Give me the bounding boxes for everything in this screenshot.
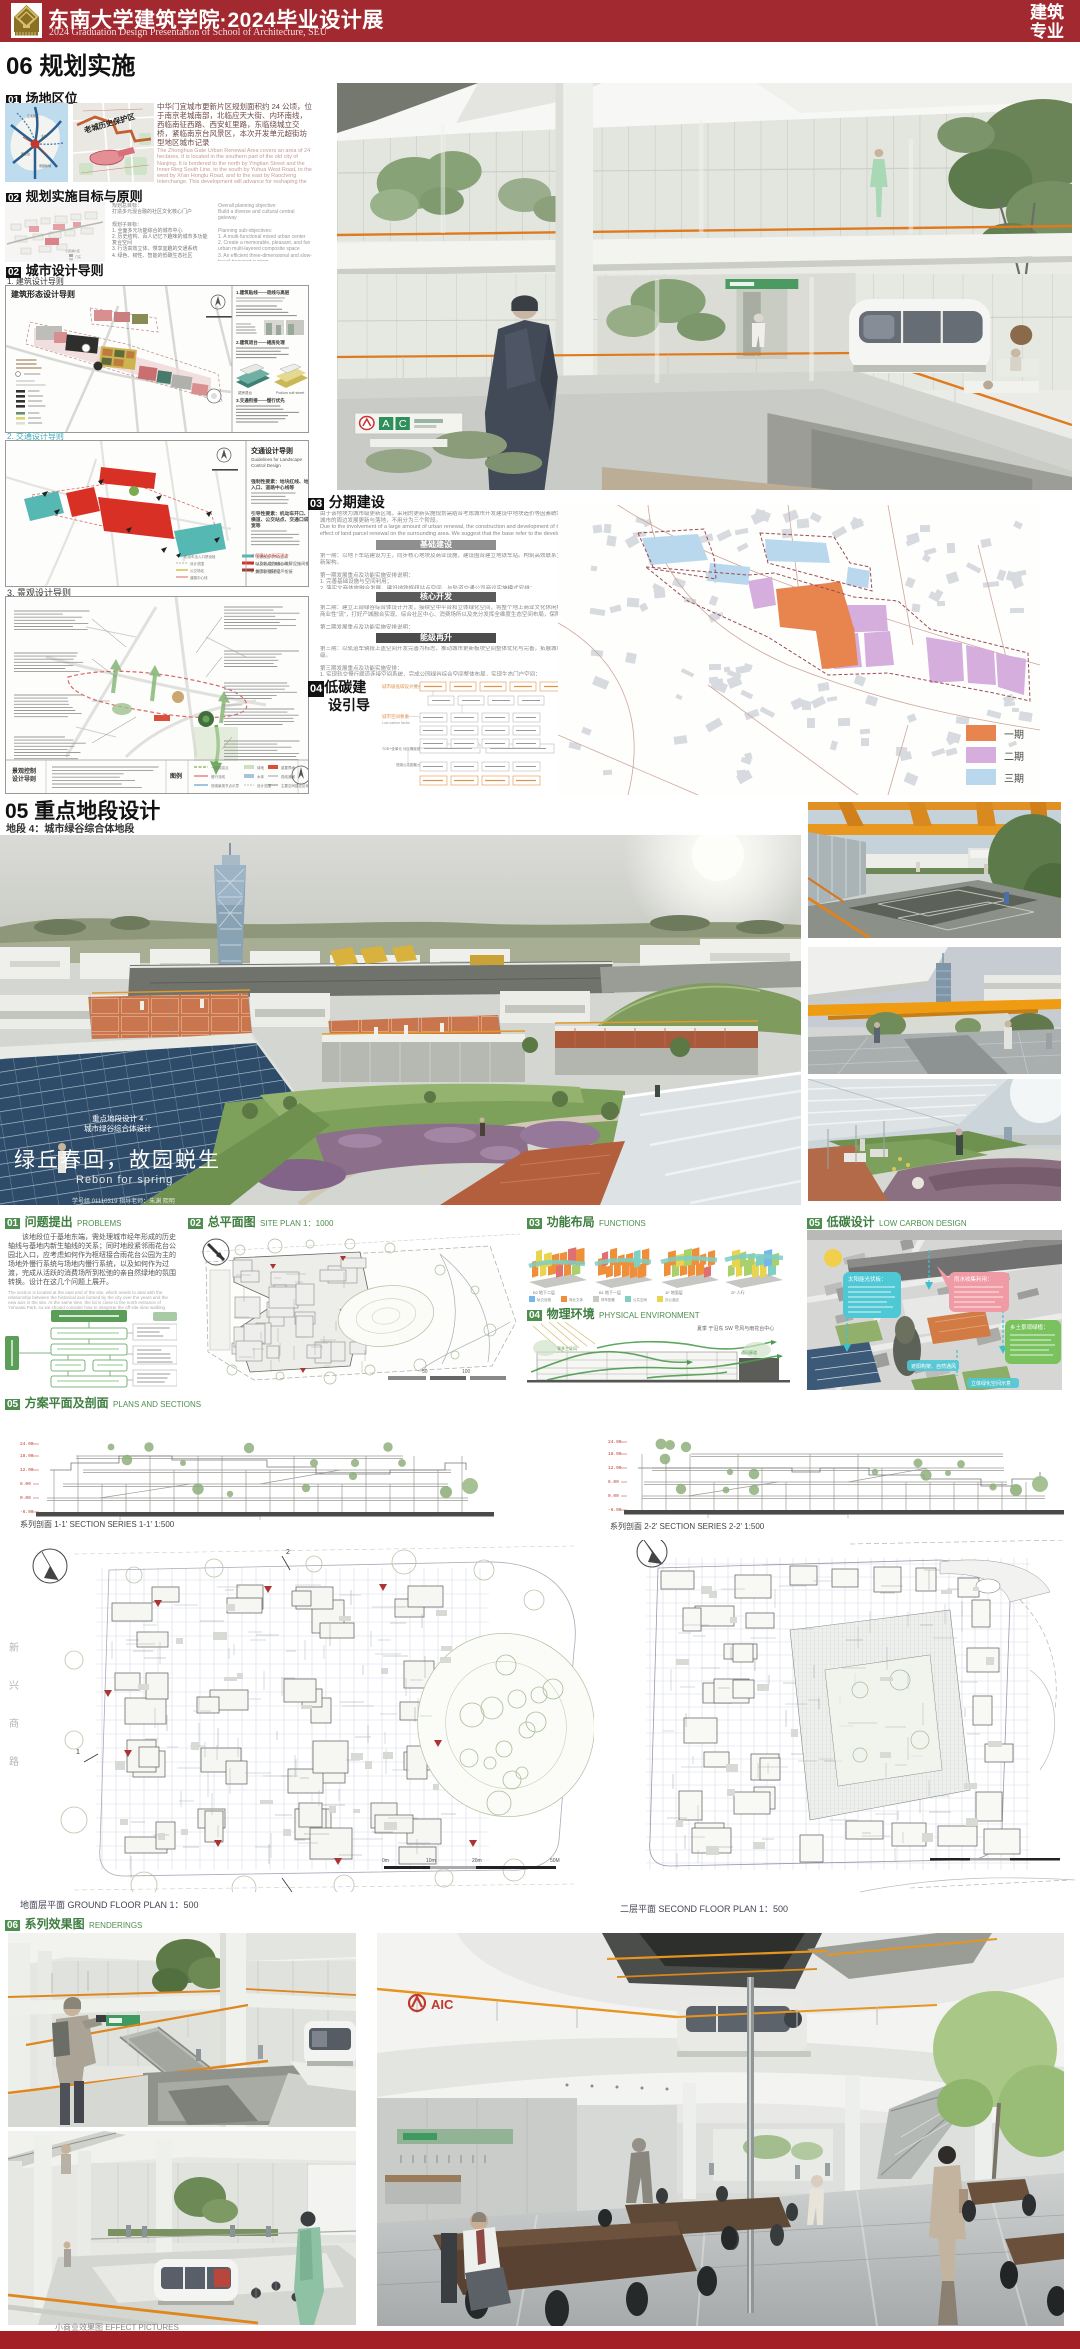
svg-text:立体绿化空间示意: 立体绿化空间示意 (971, 1380, 1011, 1387)
svg-text:✓ 保障站点街区活力: ✓ 保障站点街区活力 (251, 552, 289, 559)
svg-text:一期: 一期 (1004, 729, 1024, 741)
svg-text:绿地: 绿地 (257, 765, 265, 770)
svg-text:50: 50 (422, 1369, 428, 1375)
svg-text:城市绿谷综合体设计: 城市绿谷综合体设计 (84, 1123, 152, 1133)
svg-text:夏季 于沿东 SW 号风与雨花台中心: 夏季 于沿东 SW 号风与雨花台中心 (697, 1325, 774, 1332)
svg-text:1F 地面层: 1F 地面层 (665, 1289, 683, 1295)
svg-text:停车配套: 停车配套 (601, 1297, 615, 1302)
svg-text:1.建筑贴线——退线与高层: 1.建筑贴线——退线与高层 (236, 289, 290, 296)
svg-text:办公酒店: 办公酒店 (665, 1297, 679, 1302)
svg-text:B2 地下二层: B2 地下二层 (533, 1289, 555, 1295)
svg-text:雨花台: 雨花台 (21, 151, 30, 156)
svg-text:0.00: 0.00 (20, 1495, 31, 1501)
svg-text:机动车出入口禁设段: 机动车出入口禁设段 (184, 554, 216, 559)
svg-text:交通设计导则: 交通设计导则 (251, 446, 293, 455)
svg-text:乡土景观绿植：: 乡土景观绿植： (1010, 1323, 1049, 1331)
svg-text:3.交通衔接——慢行优先: 3.交通衔接——慢行优先 (236, 397, 285, 404)
svg-text:强制性要素：地块红线、地铁出: 强制性要素：地块红线、地铁出 (251, 478, 308, 485)
svg-text:重要界面: 重要界面 (281, 765, 295, 770)
svg-text:0.00: 0.00 (608, 1493, 619, 1499)
svg-text:-6.00: -6.00 (608, 1507, 622, 1513)
svg-text:视线通廊: 视线通廊 (281, 774, 295, 779)
svg-text:2.建筑退台——裙房处理: 2.建筑退台——裙房处理 (236, 339, 285, 346)
svg-text:学号组 01110319 指导老师：朱渊 熙明: 学号组 01110319 指导老师：朱渊 熙明 (72, 1197, 175, 1205)
svg-text:公共空间: 公共空间 (633, 1297, 647, 1302)
svg-text:商业文体: 商业文体 (569, 1297, 583, 1302)
svg-text:Control Design: Control Design (251, 463, 281, 468)
svg-text:12.00: 12.00 (608, 1465, 622, 1471)
svg-text:Rebon for spring: Rebon for spring (76, 1174, 173, 1186)
svg-text:24.00: 24.00 (608, 1439, 622, 1445)
svg-text:A: A (382, 418, 389, 429)
svg-text:18.00: 18.00 (20, 1453, 34, 1459)
svg-text:江北新区: 江北新区 (27, 113, 39, 118)
svg-text:裙房退台: 裙房退台 (238, 390, 252, 395)
svg-text:Podium soft street: Podium soft street (276, 391, 304, 395)
svg-text:0m: 0m (382, 1858, 389, 1864)
svg-text:Guidelines for Landscape: Guidelines for Landscape (251, 457, 303, 462)
svg-text:遮阳构架、自然通风: 遮阳构架、自然通风 (911, 1363, 956, 1370)
svg-text:重点地段设计 4 ·: 重点地段设计 4 · (92, 1113, 148, 1123)
svg-text:设计导则: 设计导则 (12, 775, 36, 783)
svg-text:6.00: 6.00 (608, 1479, 619, 1485)
svg-text:慢行流线: 慢行流线 (211, 774, 225, 779)
svg-text:小西湖片区: 小西湖片区 (65, 248, 80, 253)
svg-text:图例: 图例 (170, 772, 182, 780)
svg-text:12.00: 12.00 (20, 1467, 34, 1473)
svg-text:C: C (399, 418, 407, 429)
svg-text:太阳能光伏板：: 太阳能光伏板： (848, 1275, 887, 1283)
svg-text:设计范围: 设计范围 (257, 783, 271, 788)
svg-text:Low carbon factor: Low carbon factor (382, 721, 411, 725)
svg-text:✓ 兼顾轨道建设、衔接: ✓ 兼顾轨道建设、衔接 (251, 568, 294, 575)
svg-text:6.00: 6.00 (20, 1481, 31, 1487)
svg-text:入口、道路中心线等: 入口、道路中心线等 (250, 484, 294, 491)
svg-text:2F 人行: 2F 人行 (731, 1289, 745, 1295)
svg-text:低碳景观节点示意: 低碳景观节点示意 (211, 783, 239, 788)
svg-text:城市空间要素: 城市空间要素 (382, 713, 409, 720)
svg-text:夏季主导风: 夏季主导风 (557, 1345, 577, 1351)
svg-text:宽等: 宽等 (250, 522, 261, 529)
svg-text:24.00: 24.00 (20, 1441, 34, 1447)
svg-text:公交场站: 公交场站 (190, 568, 204, 573)
svg-text:一级观赏点: 一级观赏点 (211, 765, 229, 770)
svg-text:景观控制: 景观控制 (11, 767, 36, 775)
svg-text:通风廊道: 通风廊道 (741, 1349, 757, 1355)
svg-text:18.00: 18.00 (608, 1451, 622, 1457)
svg-text:南部新城: 南部新城 (39, 163, 51, 168)
svg-text:10m: 10m (426, 1858, 436, 1864)
svg-text:50M: 50M (550, 1858, 560, 1864)
svg-text:门东: 门东 (75, 254, 81, 259)
svg-text:AIC: AIC (431, 1997, 454, 2012)
svg-text:轨交设施: 轨交设施 (537, 1297, 551, 1302)
svg-text:B1 地下一层: B1 地下一层 (599, 1289, 621, 1295)
svg-text:二期: 二期 (1004, 751, 1024, 763)
svg-text:绿丘春回，故园蜕生: 绿丘春回，故园蜕生 (14, 1149, 221, 1172)
svg-text:100: 100 (462, 1369, 471, 1375)
svg-text:引导性要素：机动车开口、人行: 引导性要素：机动车开口、人行 (251, 510, 308, 517)
svg-text:横道、公交站点、交通口袋化拓: 横道、公交站点、交通口袋化拓 (251, 516, 308, 523)
svg-text:三期: 三期 (1004, 773, 1024, 785)
svg-text:雨水收集利用：: 雨水收集利用： (954, 1275, 993, 1283)
svg-text:设计范围: 设计范围 (190, 561, 204, 566)
svg-text:建筑形态设计导则: 建筑形态设计导则 (10, 289, 75, 299)
svg-text:-6.00: -6.00 (20, 1509, 34, 1515)
svg-text:1: 1 (76, 1749, 80, 1756)
svg-text:20m: 20m (472, 1858, 482, 1864)
svg-text:道路中心线: 道路中心线 (190, 575, 208, 580)
svg-text:2: 2 (286, 1549, 290, 1556)
svg-text:城市级低碳设计要点: 城市级低碳设计要点 (382, 683, 423, 690)
svg-text:✓ 以及轨道为核心疏解设施间使用人群流线: ✓ 以及轨道为核心疏解设施间使用人群流线 (251, 560, 308, 567)
svg-text:主城: 主城 (41, 133, 47, 138)
svg-text:水体: 水体 (257, 774, 265, 779)
